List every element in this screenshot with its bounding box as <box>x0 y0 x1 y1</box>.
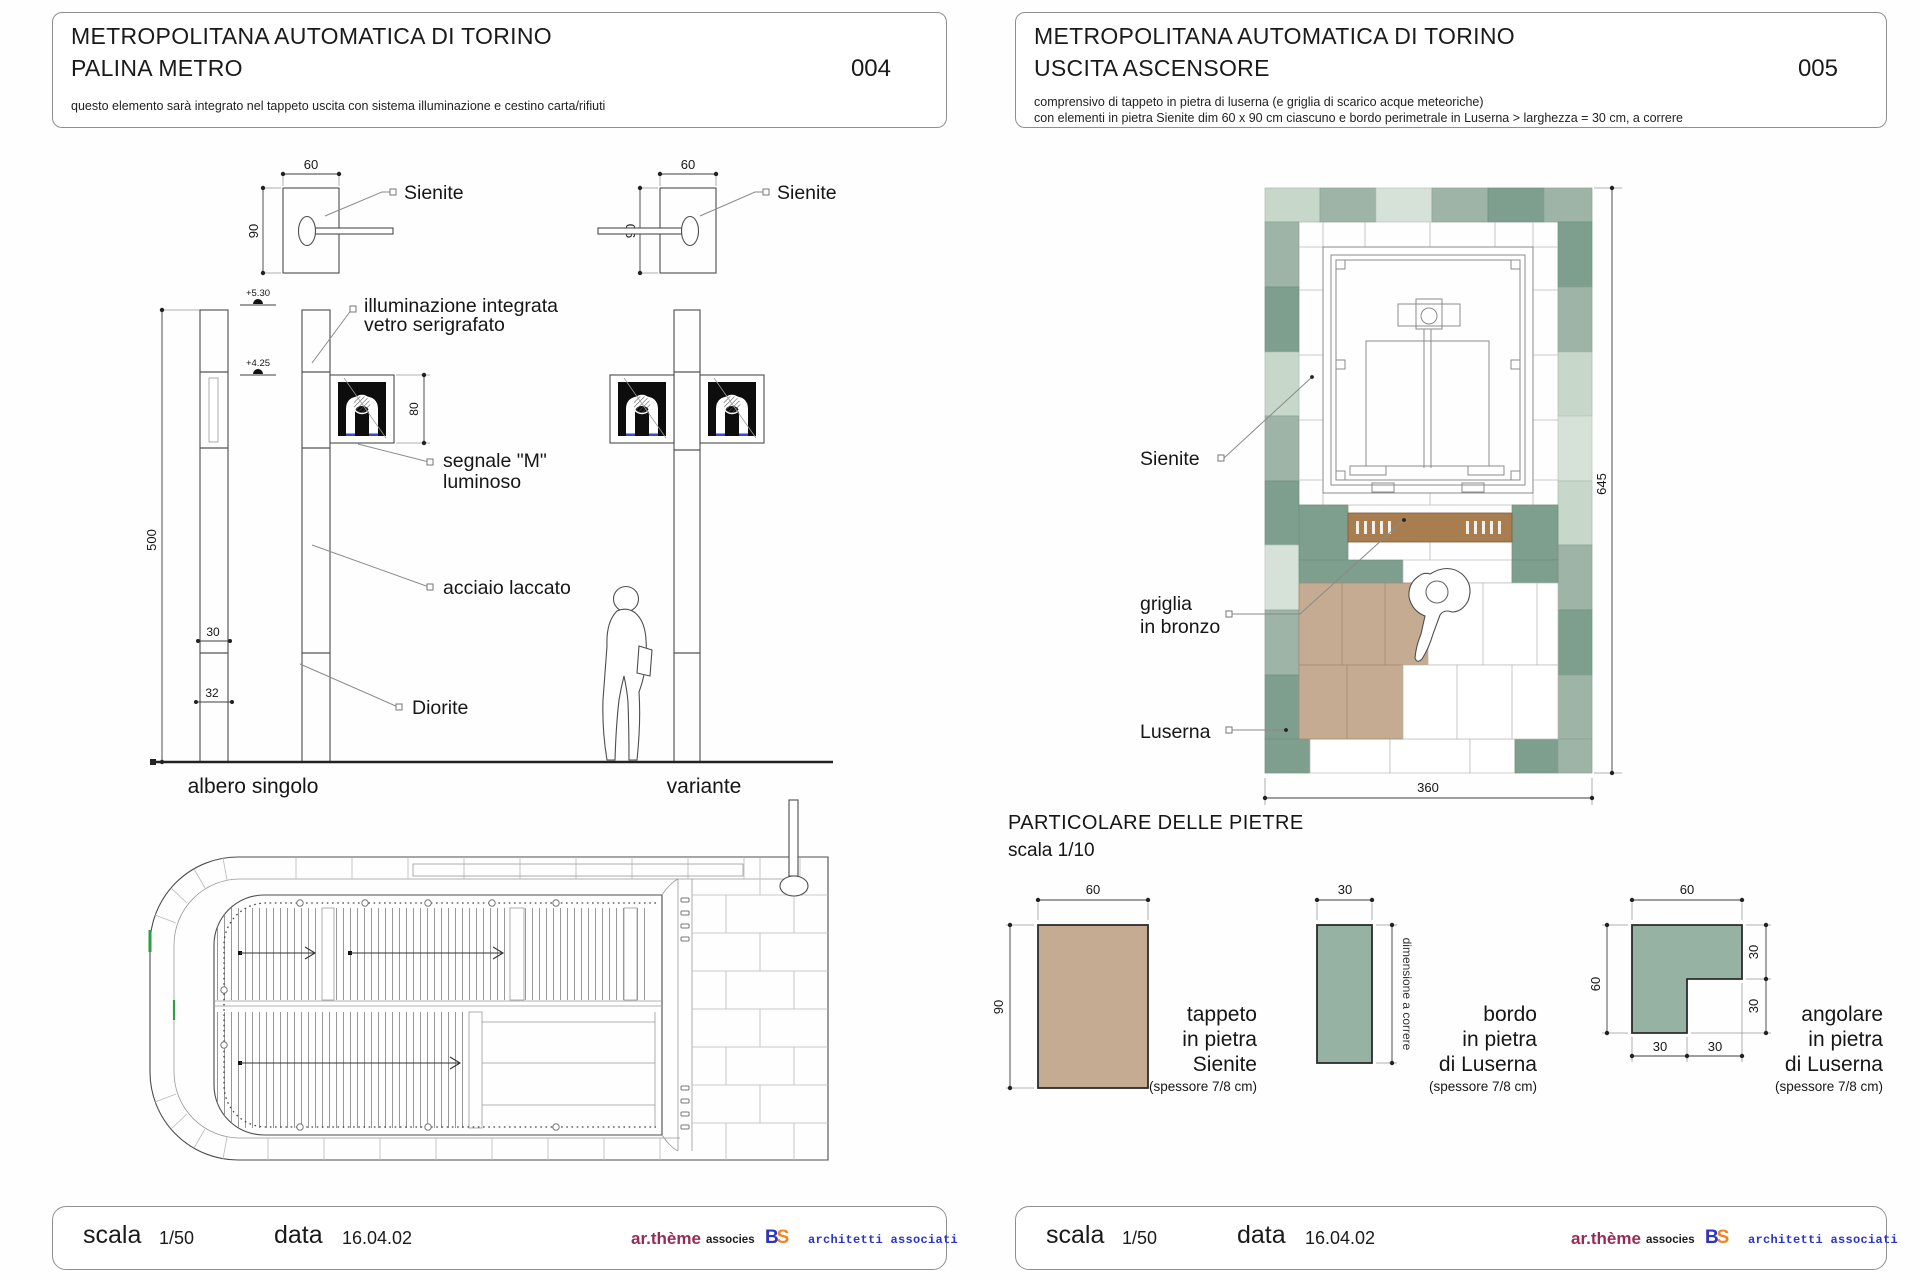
label-luminoso: luminoso <box>443 471 521 493</box>
tappeto-label-2: in pietra <box>1182 1028 1257 1051</box>
detail-tappeto: 60 90 tappeto in pietra Sienite (spessor… <box>991 882 1257 1094</box>
palina-plan-detail-2: 60 90 Sienite <box>598 157 837 275</box>
footer-block-palina: scala 1/50 data 16.04.02 ar.thème associ… <box>52 1206 947 1270</box>
dim-645: 645 <box>1594 473 1609 495</box>
angolare-label-3: di Luserna <box>1785 1053 1883 1076</box>
studio-artheme-logo: ar.thème <box>1571 1229 1641 1249</box>
tappeto-label-3: Sienite <box>1193 1053 1257 1076</box>
dim-60-top: 60 <box>1680 882 1694 897</box>
label-sienite: Sienite <box>777 182 837 204</box>
dim-32: 32 <box>205 686 219 700</box>
level-marker-upper: +5.30 <box>240 288 276 305</box>
dim-60-left: 60 <box>1588 977 1603 991</box>
studio-lsb-suffix: architetti associati <box>808 1233 958 1247</box>
level-marker-lower: +4.25 <box>240 358 276 375</box>
bordo-label-3: di Luserna <box>1439 1053 1537 1076</box>
lsb-b: B <box>765 1227 779 1249</box>
level-upper: +5.30 <box>246 288 270 299</box>
angolare-label-2: in pietra <box>1808 1028 1883 1051</box>
angolare-label-1: angolare <box>1801 1003 1883 1026</box>
grille-strip <box>678 879 692 1151</box>
metro-m-sign-right <box>700 375 764 443</box>
scala-value: 1/50 <box>159 1228 194 1249</box>
dim-80: 80 <box>407 402 421 416</box>
dim-30: 30 <box>1338 882 1352 897</box>
tile-field <box>692 857 828 1160</box>
label-in-bronzo: in bronzo <box>1140 616 1220 638</box>
dim-30: 30 <box>206 625 220 639</box>
leader-acciaio: acciaio laccato <box>312 545 571 599</box>
data-label: data <box>274 1221 323 1250</box>
studio-lsb-suffix: architetti associati <box>1748 1233 1898 1247</box>
tappeto-thickness: (spessore 7/8 cm) <box>1149 1079 1257 1094</box>
label-acciaio: acciaio laccato <box>443 577 571 599</box>
dim-30-right-2: 30 <box>1746 999 1761 1013</box>
escalator-treads <box>214 908 648 1128</box>
particolare-section: PARTICOLARE DELLE PIETRE scala 1/10 60 9… <box>991 812 1883 1094</box>
dim-60: 60 <box>1086 882 1100 897</box>
studio-artheme-logo: ar.thème <box>631 1229 701 1249</box>
bordo-thickness: (spessore 7/8 cm) <box>1429 1079 1537 1094</box>
data-label: data <box>1237 1221 1286 1250</box>
particolare-heading: PARTICOLARE DELLE PIETRE <box>1008 812 1304 834</box>
leader-diorite: Diorite <box>300 664 468 719</box>
angolare-thickness: (spessore 7/8 cm) <box>1775 1079 1883 1094</box>
particolare-scale: scala 1/10 <box>1008 840 1095 861</box>
bronze-grille <box>1348 513 1512 542</box>
ascensore-drawing: Sienite griglia in bronzo Luserna 645 <box>991 186 1883 1094</box>
palina-plan-detail-1: 60 90 Sienite <box>246 157 464 275</box>
dim-360: 360 <box>1417 780 1439 795</box>
palina-drawing: 60 90 Sienite 60 90 Sienite 500 <box>144 157 1883 1160</box>
metro-m-sign <box>330 375 394 443</box>
data-value: 16.04.02 <box>342 1228 412 1249</box>
label-diorite: Diorite <box>412 697 468 719</box>
lsb-b: B <box>1705 1227 1719 1249</box>
label-griglia: griglia <box>1140 593 1192 615</box>
pole-albero-singolo-front: 80 <box>302 310 430 762</box>
drawing-canvas: 60 90 Sienite 60 90 Sienite 500 <box>0 0 1920 1280</box>
dim-30-bottom-1: 30 <box>1653 1039 1667 1054</box>
level-lower: +4.25 <box>246 358 270 369</box>
palina-exit-plan <box>150 800 828 1160</box>
tappeto-label-1: tappeto <box>1187 1003 1257 1026</box>
dim-60: 60 <box>304 157 318 172</box>
detail-angolare: 60 60 30 30 30 30 angolare in pietra <box>1588 882 1883 1094</box>
label-luserna: Luserna <box>1140 721 1211 743</box>
bordo-label-1: bordo <box>1483 1003 1537 1026</box>
dim-30-bottom-2: 30 <box>1708 1039 1722 1054</box>
palina-elevation: 500 30 32 +5.30 +4.25 <box>144 288 833 798</box>
label-sienite: Sienite <box>1140 448 1200 470</box>
caption-albero-singolo: albero singolo <box>188 775 319 798</box>
dim-90: 90 <box>991 1000 1006 1014</box>
drawing-sheets-page: { "colors": { "luserna_sage": "#9db4a6",… <box>0 0 1920 1280</box>
dim-60: 60 <box>681 157 695 172</box>
label-vetro: vetro serigrafato <box>364 314 505 336</box>
studio-artheme-suffix: associes <box>706 1234 755 1246</box>
bordo-label-2: in pietra <box>1462 1028 1537 1051</box>
studio-artheme-suffix: associes <box>1646 1234 1695 1246</box>
elevator-shaft <box>1323 247 1533 493</box>
leader-illuminazione: illuminazione integrata vetro serigrafat… <box>312 295 558 363</box>
caption-variante: variante <box>667 775 742 798</box>
person-figure <box>603 587 652 761</box>
scala-label: scala <box>83 1221 141 1250</box>
dim-500: 500 <box>144 529 159 551</box>
label-segnale: segnale "M" <box>443 450 547 472</box>
data-value: 16.04.02 <box>1305 1228 1375 1249</box>
dim-note-corrente: dimensione a correre <box>1400 938 1414 1051</box>
pole-albero-singolo-back: 30 32 <box>194 310 234 762</box>
label-sienite: Sienite <box>404 182 464 204</box>
palina-plan-symbol <box>780 800 808 896</box>
scala-value: 1/50 <box>1122 1228 1157 1249</box>
dim-30-right-1: 30 <box>1746 945 1761 959</box>
leader-segnale: segnale "M" luminoso <box>358 444 547 493</box>
footer-block-ascensore: scala 1/50 data 16.04.02 ar.thème associ… <box>1015 1206 1887 1270</box>
scala-label: scala <box>1046 1221 1104 1250</box>
dim-90: 90 <box>246 224 261 238</box>
detail-bordo: 30 dimensione a correre bordo in pietra … <box>1315 882 1538 1094</box>
metro-m-sign-left <box>610 375 674 443</box>
